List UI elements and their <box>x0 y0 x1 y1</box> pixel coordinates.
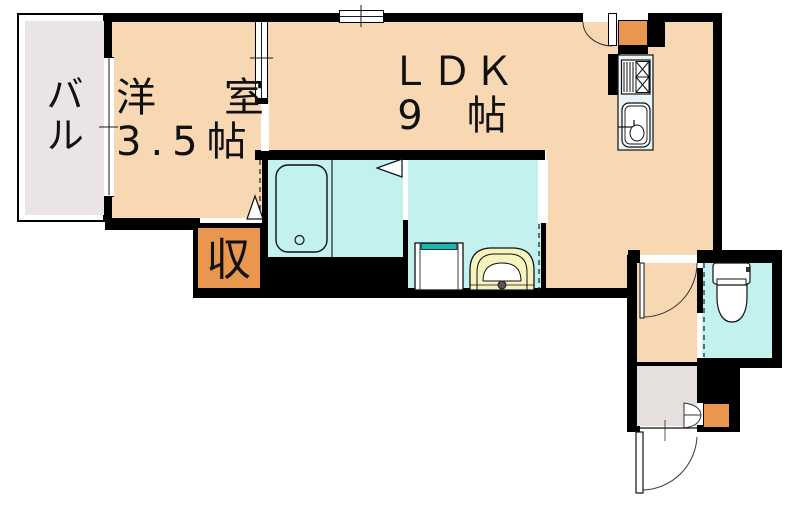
washing-machine-icon <box>415 243 463 290</box>
washbasin-icon <box>470 248 534 290</box>
kitchen-sink-icon <box>618 103 650 147</box>
storage-label: 収 <box>206 235 251 285</box>
balcony-label: バル <box>40 74 83 156</box>
western-room-label: 洋 室 <box>116 76 278 121</box>
bath-door-triangle <box>377 159 402 177</box>
ldk-size: 9 帖 <box>378 94 528 139</box>
floor-plan: バル 洋 室 3.5帖 ＬＤＫ 9 帖 収 <box>0 0 800 513</box>
bathtub-icon <box>276 160 332 257</box>
ldk-label: ＬＤＫ <box>378 50 528 95</box>
kitchen-unit <box>618 55 653 150</box>
entrance-door <box>636 432 697 493</box>
western-room-size: 3.5帖 <box>116 120 256 165</box>
hallway-door <box>640 263 697 318</box>
ldk-service-door <box>583 22 612 46</box>
bifold-shoe-cabinet-door <box>684 403 701 428</box>
stove-icon <box>622 60 651 94</box>
toilet-icon <box>713 263 750 322</box>
